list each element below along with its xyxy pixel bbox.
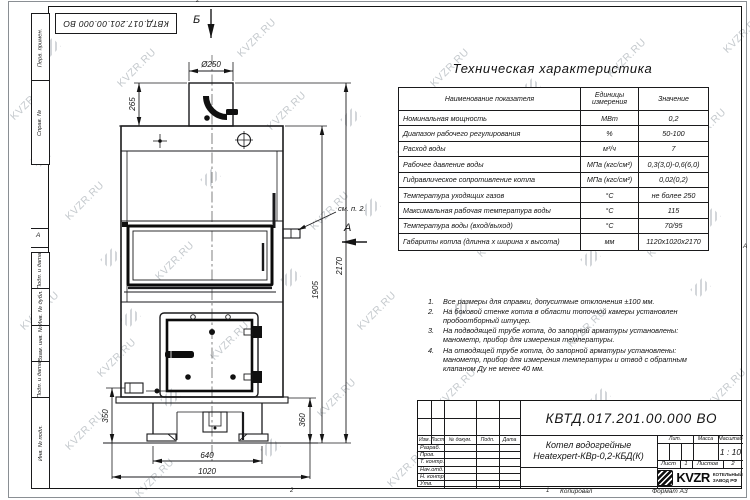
dim-body-height: 1905 <box>311 281 320 299</box>
tb-col-docnum: № докум. <box>444 435 476 444</box>
dim-flue-height: 265 <box>128 97 137 112</box>
product-name: Котел водогрейные Heatexpert-КВр-0,2-КБД… <box>520 435 657 467</box>
tb-mass-label: Масса <box>693 435 718 443</box>
spec-table-header-row: Наименование показателя Единицы измерени… <box>399 88 708 111</box>
dim-total-height: 2170 <box>335 257 344 276</box>
tb-row-tkontr: Т. контр. <box>418 458 446 466</box>
company-logo: KVZR КОТЕЛЬНЫЙ ЗАВОД РФ <box>657 468 743 487</box>
tb-row-nkontr: Н. контр. <box>418 473 446 480</box>
table-row: Диапазон рабочего регулирования%50-100 <box>399 126 708 141</box>
col-header-name: Наименование показателя <box>399 88 581 111</box>
note-reference-label: см. п. 2. <box>338 204 366 213</box>
dim-overall-width: 1020 <box>198 467 216 476</box>
col-header-units: Единицы измерения <box>581 88 639 111</box>
note-item: 1.Все размеры для справки, допуситмые от… <box>428 297 716 306</box>
dim-base-height: 360 <box>298 413 307 427</box>
tb-sheet-value: 1 <box>680 460 692 468</box>
note-item: 2.На боковой стенке котла в области топо… <box>428 307 716 325</box>
titleblock-gridline <box>681 443 682 460</box>
view-label-a: А <box>343 222 351 234</box>
tb-col-data: Дата <box>499 435 520 444</box>
table-row: Гидравлическое сопротивление котлаМПа (к… <box>399 173 708 188</box>
dim-flue-diameter: Ø250 <box>200 60 221 69</box>
table-row: Температура воды (вход/выход)°С70/95 <box>399 219 708 234</box>
tb-row-nachotd: Нач.отд. <box>418 466 446 473</box>
tb-scale-label: Масштаб <box>718 435 743 443</box>
titleblock-gridline <box>520 467 657 468</box>
table-row: Номинальная мощностьМВт0,2 <box>399 111 708 126</box>
scale-value: 1 : 10 <box>718 443 743 460</box>
titleblock-gridline <box>669 443 670 460</box>
tb-col-izm: Изм. <box>418 435 431 444</box>
spec-table: Наименование показателя Единицы измерени… <box>398 87 709 251</box>
dim-base-width: 640 <box>200 451 214 460</box>
title-block: Изм. Лист № докум. Подп. Дата Разраб. Пр… <box>417 400 742 487</box>
table-row: Температура уходящих газов°Сне более 250 <box>399 188 708 203</box>
copied-label: Копировал <box>560 488 592 495</box>
tb-row-prov: Пров. <box>418 451 446 458</box>
tb-row-utv: Утв. <box>418 480 446 487</box>
table-row: Рабочее давление водыМПа (кгс/см²)0,3(3,… <box>399 157 708 172</box>
tb-sheets-value: 2 <box>723 460 743 468</box>
table-row: Максимальная рабочая температура воды°С1… <box>399 203 708 218</box>
note-item: 4.На отводящей трубе котла, до запорной … <box>428 346 716 373</box>
spec-table-title: Техническая характеристика <box>398 61 707 76</box>
tb-sheet-label: Лист <box>657 460 680 468</box>
kvzr-logo-subtext: КОТЕЛЬНЫЙ ЗАВОД РФ <box>713 472 743 483</box>
kvzr-logo-text: KVZR <box>676 470 709 485</box>
dim-stub-height: 350 <box>101 409 110 423</box>
drawing-sheet: KVZR.RUKVZR.RUKVZR.RUKVZR.RUKVZR.RUKVZR.… <box>0 0 750 500</box>
note-item: 3.На подводящей трубе котла, до запорной… <box>428 326 716 344</box>
tb-row-razrab: Разраб. <box>418 444 446 451</box>
document-number: КВТД.017.201.00.000 ВО <box>520 401 743 435</box>
titleblock-gridline <box>418 418 520 419</box>
table-row: Габариты котла (длинна х ширина х высота… <box>399 234 708 249</box>
table-row: Расход водым³/ч7 <box>399 142 708 157</box>
format-label: Формат А3 <box>652 488 688 495</box>
kvzr-logo-icon <box>657 470 673 486</box>
tb-col-list: Лист <box>431 435 444 444</box>
tb-lit-label: Лит. <box>657 435 693 443</box>
view-label-b: Б <box>193 14 200 26</box>
tb-col-podp: Подп. <box>476 435 499 444</box>
col-header-value: Значение <box>639 88 708 111</box>
tb-sheets-label: Листов <box>692 460 723 468</box>
notes-list: 1.Все размеры для справки, допуситмые от… <box>428 297 716 374</box>
